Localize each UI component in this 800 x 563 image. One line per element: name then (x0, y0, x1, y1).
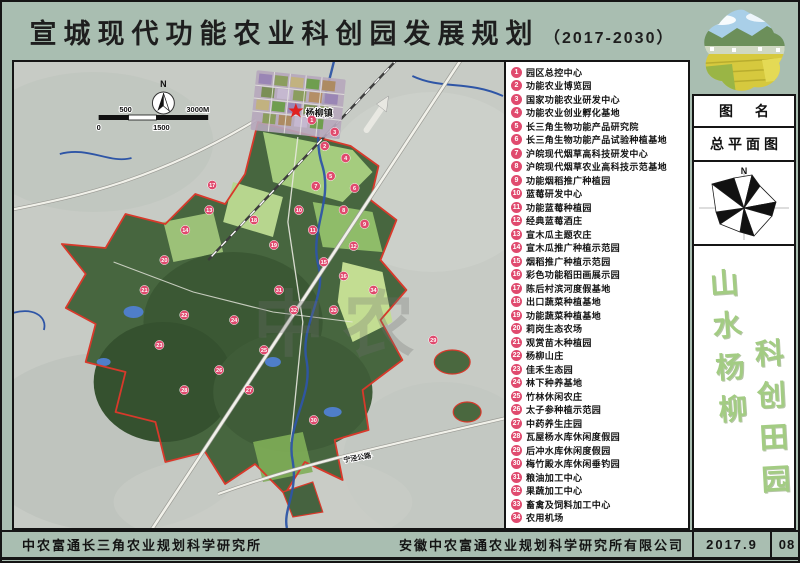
svg-text:16: 16 (341, 274, 347, 280)
legend-item: 23佳禾生态园 (511, 363, 686, 376)
compass-n-label: N (741, 166, 748, 176)
legend-item: 15烟稻推广种植示范园 (511, 255, 686, 268)
legend-item: 31粮油加工中心 (511, 471, 686, 484)
legend-number-badge: 12 (511, 215, 522, 226)
title-text: 宣城现代功能农业科创园发展规划 (30, 19, 540, 49)
svg-text:500: 500 (119, 105, 131, 114)
legend-item: 10蓝莓研发中心 (511, 187, 686, 200)
svg-text:23: 23 (156, 343, 162, 349)
legend-item: 8沪皖现代烟草农业高科技示范基地 (511, 160, 686, 173)
legend-label: 国家功能农业研发中心 (526, 93, 620, 106)
legend-item: 3国家功能农业研发中心 (511, 93, 686, 106)
legend-item: 27中药养生庄园 (511, 417, 686, 430)
drawing-name-label-box: 图 名 (692, 94, 796, 128)
legend-label: 梅竹殿水库休闲垂钓园 (526, 457, 620, 470)
legend-number-badge: 10 (511, 188, 522, 199)
svg-text:2: 2 (323, 144, 326, 150)
legend-label: 中药养生庄园 (526, 417, 582, 430)
svg-text:11: 11 (310, 228, 316, 234)
legend-item: 9功能烟稻推广种植园 (511, 174, 686, 187)
svg-text:1500: 1500 (153, 123, 170, 132)
site-photo-blob (692, 8, 796, 94)
site-photo (692, 8, 796, 94)
legend-label: 出口蔬菜种植基地 (526, 295, 601, 308)
legend-label: 瓦屋杨水库休闲度假园 (526, 430, 620, 443)
svg-text:19: 19 (271, 243, 277, 249)
compass-rose: N (694, 162, 794, 244)
legend-label: 林下种养基地 (526, 376, 582, 389)
legend-label: 杨柳山庄 (526, 349, 564, 362)
legend-item: 1园区总控中心 (511, 66, 686, 79)
legend-number-badge: 34 (511, 512, 522, 523)
legend-number-badge: 7 (511, 148, 522, 159)
legend-number-badge: 17 (511, 283, 522, 294)
title-period: （2017-2030） (544, 30, 675, 47)
legend-number-badge: 30 (511, 458, 522, 469)
legend-label: 功能蓝莓种植园 (526, 201, 592, 214)
legend-label: 农用机场 (526, 511, 564, 524)
legend-item: 25竹林休闲农庄 (511, 390, 686, 403)
legend-item: 32果蔬加工中心 (511, 484, 686, 497)
legend-number-badge: 14 (511, 242, 522, 253)
legend-label: 粮油加工中心 (526, 471, 582, 484)
svg-text:30: 30 (311, 418, 317, 424)
legend-number-badge: 23 (511, 364, 522, 375)
legend-number-badge: 27 (511, 418, 522, 429)
legend-item: 4功能农业创业孵化基地 (511, 106, 686, 119)
svg-text:26: 26 (216, 368, 222, 374)
svg-text:9: 9 (363, 222, 366, 228)
legend-item: 22杨柳山庄 (511, 349, 686, 362)
legend-number-badge: 21 (511, 337, 522, 348)
legend-label: 莉岗生态农场 (526, 322, 582, 335)
legend-label: 经典蓝莓酒庄 (526, 214, 582, 227)
svg-text:20: 20 (161, 258, 167, 264)
svg-text:28: 28 (181, 388, 187, 394)
legend-number-badge: 29 (511, 445, 522, 456)
legend-item: 24林下种养基地 (511, 376, 686, 389)
legend-number-badge: 25 (511, 391, 522, 402)
legend-label: 沪皖现代烟草高科技研发中心 (526, 147, 648, 160)
svg-text:3000M: 3000M (186, 105, 209, 114)
svg-text:15: 15 (321, 260, 327, 266)
legend-item: 26太子参种植示范园 (511, 403, 686, 416)
svg-text:33: 33 (331, 308, 337, 314)
legend-item: 28瓦屋杨水库休闲度假园 (511, 430, 686, 443)
footer-left-org: 中农富通长三角农业规划科学研究所 (2, 532, 399, 557)
calligraphy-right: 科创田园 (746, 337, 797, 507)
legend-item: 13宣木瓜主题农庄 (511, 228, 686, 241)
svg-text:6: 6 (353, 186, 356, 192)
legend-number-badge: 1 (511, 67, 522, 78)
svg-text:21: 21 (141, 288, 147, 294)
svg-text:13: 13 (206, 208, 212, 214)
legend-number-badge: 33 (511, 499, 522, 510)
svg-text:32: 32 (291, 308, 297, 314)
legend-item: 34农用机场 (511, 511, 686, 524)
legend-label: 畜禽及饲料加工中心 (526, 498, 611, 511)
svg-text:22: 22 (181, 313, 187, 319)
legend-label: 竹林休闲农庄 (526, 390, 582, 403)
legend-number-badge: 32 (511, 485, 522, 496)
legend-number-badge: 24 (511, 377, 522, 388)
legend-item: 14宣木瓜推广种植示范园 (511, 241, 686, 254)
legend-item: 12经典蓝莓酒庄 (511, 214, 686, 227)
svg-text:27: 27 (246, 388, 252, 394)
legend-item: 21观赏苗木种植园 (511, 336, 686, 349)
plan-sheet: 宣城现代功能农业科创园发展规划 （2017-2030） (0, 0, 800, 563)
legend-number-badge: 16 (511, 269, 522, 280)
legend-number-badge: 13 (511, 229, 522, 240)
legend-number-badge: 2 (511, 80, 522, 91)
legend-number-badge: 3 (511, 94, 522, 105)
legend-number-badge: 31 (511, 472, 522, 483)
legend-label: 佳禾生态园 (526, 363, 573, 376)
legend-item: 29后冲水库休闲度假园 (511, 444, 686, 457)
legend-label: 园区总控中心 (526, 66, 582, 79)
legend-label: 果蔬加工中心 (526, 484, 582, 497)
compass-box: N (692, 160, 796, 246)
svg-text:12: 12 (351, 244, 357, 250)
page-title: 宣城现代功能农业科创园发展规划 （2017-2030） (2, 12, 702, 51)
svg-text:29: 29 (430, 338, 436, 344)
svg-text:10: 10 (296, 208, 302, 214)
svg-text:17: 17 (209, 183, 215, 189)
legend-number-badge: 5 (511, 121, 522, 132)
legend-item: 30梅竹殿水库休闲垂钓园 (511, 457, 686, 470)
legend-label: 功能蔬菜种植基地 (526, 309, 601, 322)
legend-number-badge: 26 (511, 404, 522, 415)
drawing-name-value-box: 总平面图 (692, 126, 796, 162)
legend-number-badge: 20 (511, 323, 522, 334)
footer-sheet-number: 08 (770, 532, 800, 557)
legend-label: 彩色功能稻田画展示园 (526, 268, 620, 281)
legend-item: 6长三角生物功能产品试验种植基地 (511, 133, 686, 146)
svg-text:34: 34 (370, 288, 377, 294)
legend-number-badge: 19 (511, 310, 522, 321)
svg-text:14: 14 (182, 228, 189, 234)
legend-label: 功能农业博览园 (526, 79, 592, 92)
legend-item: 20莉岗生态农场 (511, 322, 686, 335)
calligraphy-box: 山水杨柳 科创田园 (692, 244, 796, 530)
watermark-text: 中农 (253, 286, 432, 366)
legend-number-badge: 28 (511, 431, 522, 442)
map-area: 杨柳镇 N 500 3000M 0 1500 (14, 62, 506, 528)
legend-label: 宣木瓜推广种植示范园 (526, 241, 620, 254)
legend-label: 后冲水库休闲度假园 (526, 444, 611, 457)
svg-text:31: 31 (276, 288, 282, 294)
legend-label: 功能农业创业孵化基地 (526, 106, 620, 119)
svg-text:24: 24 (231, 318, 238, 324)
legend-label: 宣木瓜主题农庄 (526, 228, 592, 241)
legend-label: 太子参种植示范园 (526, 403, 601, 416)
title-block-footer: 中农富通长三角农业规划科学研究所 安徽中农富通农业规划科学研究所有限公司 201… (2, 530, 800, 560)
svg-text:N: N (160, 79, 166, 89)
legend-label: 沪皖现代烟草农业高科技示范基地 (526, 160, 667, 173)
legend-item: 11功能蓝莓种植园 (511, 201, 686, 214)
svg-text:0: 0 (97, 123, 101, 132)
footer-date: 2017.9 (692, 532, 770, 557)
legend-panel: 1园区总控中心2功能农业博览园3国家功能农业研发中心4功能农业创业孵化基地5长三… (506, 62, 688, 528)
legend-number-badge: 6 (511, 134, 522, 145)
legend-label: 陈后村滨河度假基地 (526, 282, 611, 295)
legend-label: 蓝莓研发中心 (526, 187, 582, 200)
site-map: 杨柳镇 N 500 3000M 0 1500 (14, 62, 504, 528)
legend-label: 长三角生物功能产品研究院 (526, 120, 639, 133)
legend-item: 33畜禽及饲料加工中心 (511, 498, 686, 511)
svg-text:7: 7 (314, 184, 317, 190)
svg-text:1: 1 (310, 118, 313, 124)
drawing-name-label: 图 名 (719, 101, 778, 121)
svg-text:18: 18 (251, 218, 257, 224)
legend-item: 2功能农业博览园 (511, 79, 686, 92)
legend-number-badge: 9 (511, 175, 522, 186)
legend-label: 功能烟稻推广种植园 (526, 174, 611, 187)
main-drawing-box: 杨柳镇 N 500 3000M 0 1500 (12, 60, 690, 530)
svg-text:8: 8 (342, 208, 345, 214)
legend-label: 观赏苗木种植园 (526, 336, 592, 349)
legend-label: 烟稻推广种植示范园 (526, 255, 611, 268)
legend-item: 16彩色功能稻田画展示园 (511, 268, 686, 281)
legend-item: 17陈后村滨河度假基地 (511, 282, 686, 295)
legend-number-badge: 4 (511, 107, 522, 118)
svg-text:5: 5 (329, 174, 332, 180)
legend-number-badge: 8 (511, 161, 522, 172)
footer-right-org: 安徽中农富通农业规划科学研究所有限公司 (399, 532, 692, 557)
svg-text:3: 3 (333, 130, 336, 136)
legend-label: 长三角生物功能产品试验种植基地 (526, 133, 667, 146)
legend-number-badge: 22 (511, 350, 522, 361)
svg-text:25: 25 (261, 348, 267, 354)
legend-item: 18出口蔬菜种植基地 (511, 295, 686, 308)
legend-number-badge: 11 (511, 202, 522, 213)
legend-item: 5长三角生物功能产品研究院 (511, 120, 686, 133)
legend-number-badge: 18 (511, 296, 522, 307)
legend-item: 19功能蔬菜种植基地 (511, 309, 686, 322)
drawing-name-value: 总平面图 (710, 134, 782, 154)
legend-item: 7沪皖现代烟草高科技研发中心 (511, 147, 686, 160)
legend-number-badge: 15 (511, 256, 522, 267)
